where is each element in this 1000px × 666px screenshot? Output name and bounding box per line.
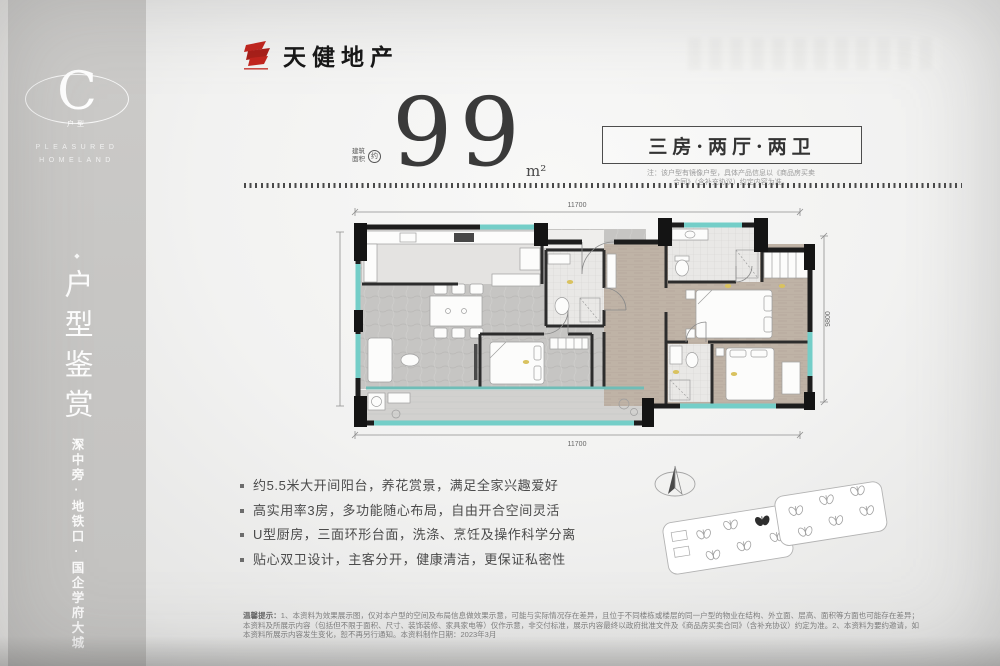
dining-chair xyxy=(434,328,447,338)
list-item: 约5.5米大开间阳台，养花赏景，满足全家兴趣爱好 xyxy=(240,479,670,493)
hall-cabinet xyxy=(607,254,616,288)
faint-watermark xyxy=(688,38,940,70)
bullet-icon xyxy=(240,558,244,562)
balcony-cabinet xyxy=(388,393,410,403)
dining-chair xyxy=(452,328,465,338)
bullet-icon xyxy=(240,484,244,488)
bullet-icon xyxy=(240,509,244,513)
area-approx-circle: 约 xyxy=(368,150,381,163)
feature-text: 约5.5米大开间阳台，养花赏景，满足全家兴趣爱好 xyxy=(253,479,558,493)
kitchen-counter xyxy=(364,231,540,244)
feature-list: 约5.5米大开间阳台，养花赏景，满足全家兴趣爱好 高实用率3房，多功能随心布局，… xyxy=(240,479,670,577)
washer xyxy=(368,393,385,410)
brand-name: 天健地产 xyxy=(283,38,399,72)
sidebar-tagline: PLEASURED HOMELAND xyxy=(8,141,146,167)
site-key-plan xyxy=(645,462,890,580)
list-item: U型厨房，三面环形台面，洗涤、烹饪及操作科学分离 xyxy=(240,528,670,542)
diamond-ornament-top: ◆ xyxy=(74,252,79,260)
bullet-icon xyxy=(240,533,244,537)
bath2-vanity xyxy=(670,346,682,364)
pillow xyxy=(751,350,767,357)
nightstand xyxy=(686,290,695,299)
pillow xyxy=(730,350,746,357)
nightstand xyxy=(686,329,695,338)
dim-top-label: 11700 xyxy=(568,202,587,209)
guest-bath-vanity xyxy=(548,254,570,264)
brand-logo-icon xyxy=(240,39,274,71)
north-compass-icon xyxy=(655,466,695,496)
bedroom2-desk xyxy=(782,362,800,394)
pillow xyxy=(764,296,772,311)
unit-c-badge: C 户型 xyxy=(25,70,129,128)
feature-text: 贴心双卫设计，主客分开，健康清洁，更保证私密性 xyxy=(253,553,566,567)
bottom-shade xyxy=(0,636,1000,666)
sidebar: C 户型 PLEASURED HOMELAND ◆ 户型鉴赏 ◆ 深中旁·地铁口… xyxy=(8,0,146,666)
flyer-page: C 户型 PLEASURED HOMELAND ◆ 户型鉴赏 ◆ 深中旁·地铁口… xyxy=(0,0,1000,666)
vertical-title: 户型鉴赏 xyxy=(56,269,98,429)
dotted-divider xyxy=(244,183,962,188)
tv xyxy=(474,344,478,380)
brand-header: 天健地产 xyxy=(240,38,399,72)
badge-letter: C xyxy=(25,56,129,128)
dining-chair xyxy=(470,284,483,294)
dim-bottom-label: 11700 xyxy=(568,441,587,448)
dim-right-label: 9800 xyxy=(825,311,832,327)
area-unit: m² xyxy=(526,162,546,180)
master-bed xyxy=(696,290,772,338)
vertical-title-block: ◆ 户型鉴赏 ◆ xyxy=(8,252,146,446)
feature-text: 高实用率3房，多功能随心布局，自由开合空间灵活 xyxy=(253,504,560,518)
pillow xyxy=(534,366,541,380)
bath2-toilet xyxy=(686,353,698,368)
pillow xyxy=(764,317,772,332)
area-prefix-stack: 建筑 面积 xyxy=(352,148,365,164)
disclaimer-label: 温馨提示： xyxy=(243,611,281,620)
dining-table xyxy=(430,296,482,326)
unit-note-line1: 注：该户型有镜像户型，具体产品信息以《商品房买卖 xyxy=(594,169,868,178)
vertical-subtitle-block: 深中旁·地铁口·国企学府大城 xyxy=(8,438,146,651)
fridge xyxy=(520,248,540,270)
tagline-line-1: PLEASURED xyxy=(8,141,146,154)
badge-caption: 户型 xyxy=(25,119,129,129)
kitchen-stove xyxy=(454,233,474,242)
area-value: 99 xyxy=(392,86,527,181)
pillow xyxy=(534,346,541,360)
vertical-subtitle: 深中旁·地铁口·国企学府大城 xyxy=(68,438,87,651)
list-item: 高实用率3房，多功能随心布局，自由开合空间灵活 xyxy=(240,504,670,518)
master-wardrobe xyxy=(764,252,808,278)
building-block-a xyxy=(662,504,795,575)
master-toilet xyxy=(676,260,689,276)
page-left-edge xyxy=(0,0,8,666)
guest-toilet xyxy=(555,298,569,315)
feature-text: U型厨房，三面环形台面，洗涤、烹饪及操作科学分离 xyxy=(253,528,576,542)
entry-floor xyxy=(544,230,604,248)
sofa xyxy=(368,338,392,382)
list-item: 贴心双卫设计，主客分开，健康清洁，更保证私密性 xyxy=(240,553,670,567)
master-vanity xyxy=(672,229,708,240)
coffee-table xyxy=(401,354,419,366)
unit-type-box: 三房·两厅·两卫 xyxy=(602,126,862,164)
area-prefix-line2: 面积 xyxy=(352,156,365,164)
disclaimer-body: 1、本资料为效果展示图，仅对本户型的空间及布局信息做效果示意，可能与实际情况存在… xyxy=(243,611,919,639)
area-prefix-line1: 建筑 xyxy=(352,148,365,156)
building-block-b xyxy=(774,480,888,546)
kitchen-island xyxy=(492,274,540,286)
tagline-line-2: HOMELAND xyxy=(8,154,146,167)
floor-plan: 11700 11700 9800 xyxy=(330,192,870,454)
nightstand xyxy=(716,348,724,356)
